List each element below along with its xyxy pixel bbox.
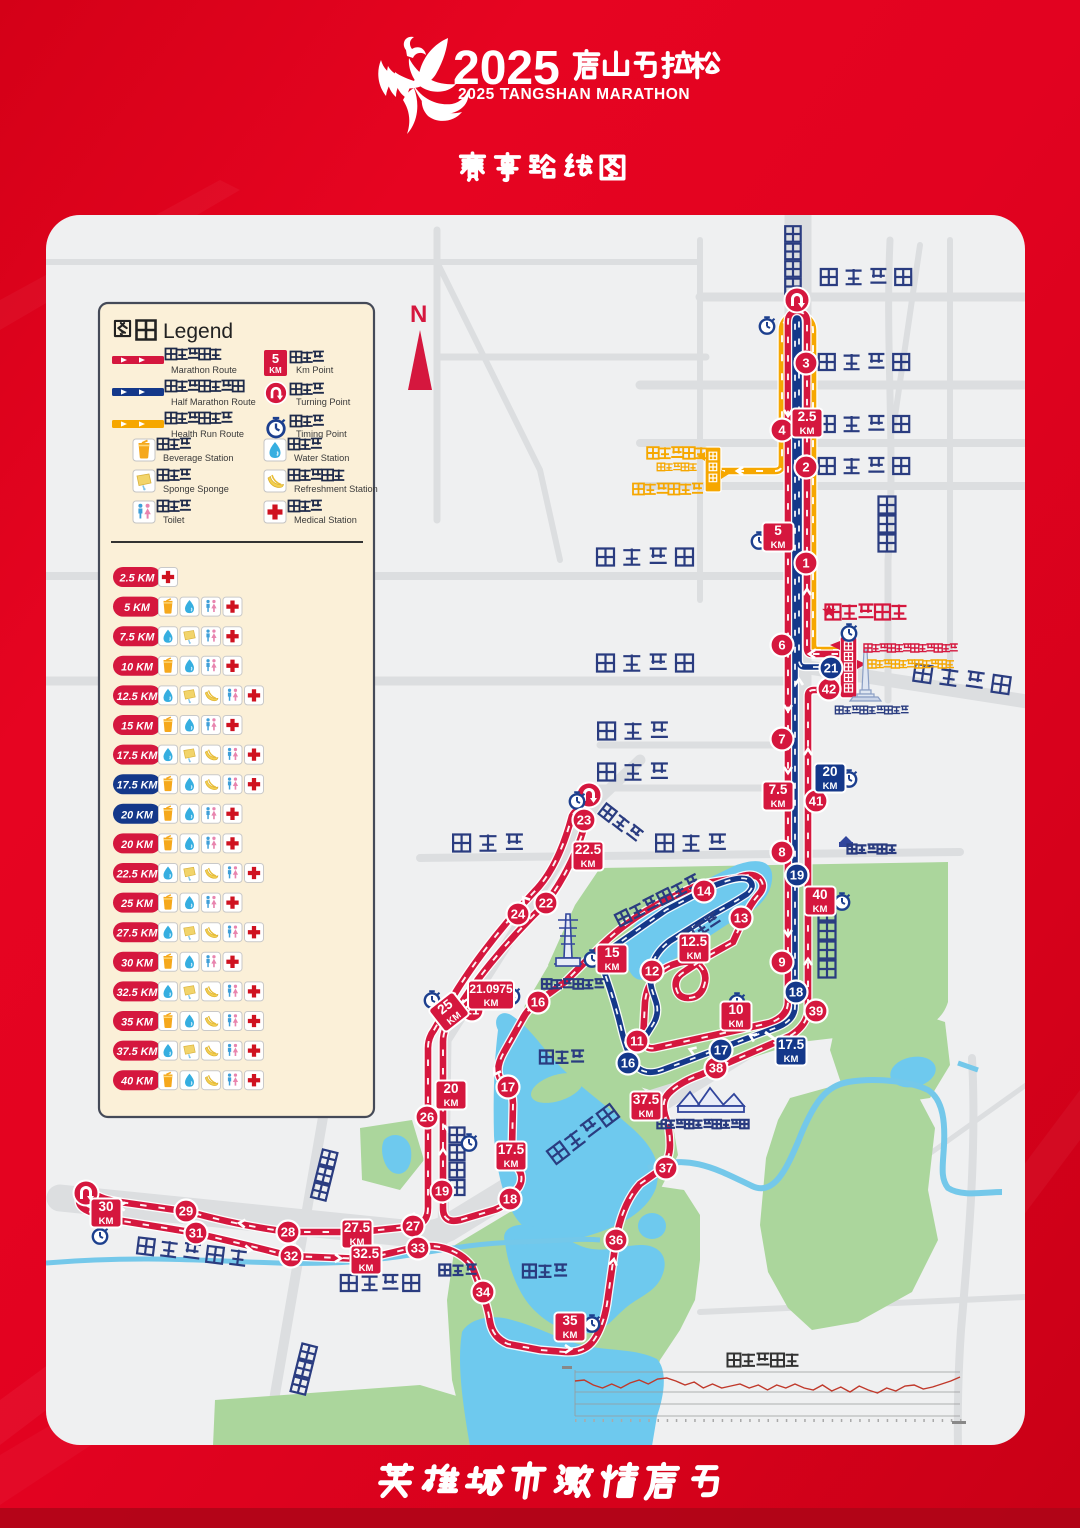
svg-text:23: 23 <box>577 813 591 828</box>
svg-text:30 KM: 30 KM <box>121 957 154 969</box>
svg-text:4: 4 <box>778 423 786 438</box>
svg-text:19: 19 <box>790 868 804 883</box>
svg-text:22.5: 22.5 <box>575 842 602 857</box>
svg-text:3: 3 <box>802 356 809 371</box>
svg-text:39: 39 <box>809 1004 823 1019</box>
svg-text:17.5 KM: 17.5 KM <box>117 780 159 792</box>
svg-text:27.5: 27.5 <box>344 1220 371 1235</box>
svg-text:29: 29 <box>179 1204 193 1219</box>
svg-text:28: 28 <box>281 1225 295 1240</box>
svg-text:Beverage Station: Beverage Station <box>163 453 234 463</box>
svg-text:KM: KM <box>99 1216 114 1227</box>
svg-text:7.5: 7.5 <box>769 782 788 797</box>
svg-text:KM: KM <box>823 781 838 792</box>
svg-text:2.5 KM: 2.5 KM <box>119 573 156 585</box>
svg-text:17.5: 17.5 <box>498 1142 525 1157</box>
svg-text:Sponge Sponge: Sponge Sponge <box>163 484 229 494</box>
svg-text:Timing Point: Timing Point <box>296 429 347 439</box>
svg-text:9: 9 <box>778 955 785 970</box>
svg-text:KM: KM <box>444 1098 459 1109</box>
svg-text:8: 8 <box>778 845 785 860</box>
svg-text:KM: KM <box>605 962 620 973</box>
svg-text:2025 TANGSHAN MARATHON: 2025 TANGSHAN MARATHON <box>458 86 690 103</box>
svg-text:7: 7 <box>778 732 785 747</box>
svg-text:KM: KM <box>484 998 499 1009</box>
svg-text:37.5 KM: 37.5 KM <box>117 1046 159 1058</box>
svg-text:32.5 KM: 32.5 KM <box>117 987 159 999</box>
svg-text:7.5 KM: 7.5 KM <box>120 632 156 644</box>
svg-text:Health Run Route: Health Run Route <box>171 429 244 439</box>
svg-text:35: 35 <box>562 1313 578 1328</box>
svg-text:KM: KM <box>269 366 282 375</box>
svg-text:35 KM: 35 KM <box>121 1017 154 1029</box>
svg-text:34: 34 <box>476 1285 491 1300</box>
svg-text:14: 14 <box>697 884 712 899</box>
svg-text:36: 36 <box>609 1233 623 1248</box>
svg-text:Medical Station: Medical Station <box>294 515 357 525</box>
svg-text:12: 12 <box>645 964 659 979</box>
svg-text:12.5: 12.5 <box>681 934 708 949</box>
svg-text:18: 18 <box>789 985 803 1000</box>
svg-text:18: 18 <box>503 1192 517 1207</box>
svg-text:10 KM: 10 KM <box>121 661 154 673</box>
svg-text:19: 19 <box>435 1184 449 1199</box>
svg-text:KM: KM <box>359 1263 374 1274</box>
svg-text:25 KM: 25 KM <box>120 898 154 910</box>
svg-text:Turning Point: Turning Point <box>296 397 351 407</box>
svg-text:30: 30 <box>98 1199 113 1214</box>
svg-text:15: 15 <box>604 945 620 960</box>
svg-text:Half Marathon Route: Half Marathon Route <box>171 397 256 407</box>
svg-text:40 KM: 40 KM <box>120 1076 154 1088</box>
svg-text:27.5 KM: 27.5 KM <box>116 928 159 940</box>
svg-text:Km Point: Km Point <box>296 365 334 375</box>
svg-text:17: 17 <box>714 1043 728 1058</box>
svg-text:24: 24 <box>511 907 526 922</box>
svg-text:KM: KM <box>813 904 828 915</box>
svg-text:26: 26 <box>420 1110 434 1125</box>
svg-text:20: 20 <box>822 764 837 779</box>
svg-text:N: N <box>410 301 427 328</box>
svg-text:21: 21 <box>824 661 838 676</box>
svg-text:13: 13 <box>734 911 748 926</box>
svg-text:37.5: 37.5 <box>633 1092 660 1107</box>
svg-text:KM: KM <box>800 426 815 437</box>
svg-text:2: 2 <box>802 460 809 475</box>
svg-text:5: 5 <box>272 351 279 366</box>
svg-text:31: 31 <box>189 1226 203 1241</box>
svg-text:KM: KM <box>729 1019 744 1030</box>
svg-text:6: 6 <box>778 638 785 653</box>
svg-text:20 KM: 20 KM <box>120 839 154 851</box>
svg-text:20: 20 <box>443 1081 458 1096</box>
svg-text:KM: KM <box>563 1330 578 1341</box>
svg-text:16: 16 <box>621 1056 635 1071</box>
svg-text:32: 32 <box>284 1249 298 1264</box>
svg-text:KM: KM <box>504 1159 519 1170</box>
svg-text:KM: KM <box>581 859 596 870</box>
svg-text:KM: KM <box>639 1109 654 1120</box>
svg-text:11: 11 <box>630 1034 644 1049</box>
svg-text:20 KM: 20 KM <box>120 809 154 821</box>
svg-text:Refreshment Station: Refreshment Station <box>294 484 378 494</box>
svg-text:42: 42 <box>822 682 836 697</box>
svg-text:KM: KM <box>687 951 702 962</box>
svg-text:10: 10 <box>728 1002 743 1017</box>
svg-text:22.5 KM: 22.5 KM <box>116 869 159 881</box>
svg-text:33: 33 <box>411 1241 425 1256</box>
svg-text:1: 1 <box>802 556 809 571</box>
svg-text:17.5: 17.5 <box>778 1037 805 1052</box>
svg-text:Legend: Legend <box>163 320 233 343</box>
svg-text:38: 38 <box>709 1061 723 1076</box>
svg-text:41: 41 <box>809 794 823 809</box>
svg-text:Toilet: Toilet <box>163 515 185 525</box>
svg-text:32.5: 32.5 <box>353 1246 380 1261</box>
svg-text:2.5: 2.5 <box>798 409 817 424</box>
svg-text:17: 17 <box>501 1080 515 1095</box>
svg-text:15 KM: 15 KM <box>121 721 154 733</box>
svg-text:5 KM: 5 KM <box>124 602 151 614</box>
svg-text:KM: KM <box>784 1054 799 1065</box>
svg-text:22: 22 <box>539 896 553 911</box>
svg-text:Water Station: Water Station <box>294 453 349 463</box>
svg-text:KM: KM <box>771 540 786 551</box>
svg-text:27: 27 <box>406 1219 420 1234</box>
svg-text:5: 5 <box>774 523 782 538</box>
svg-text:12.5 KM: 12.5 KM <box>117 691 159 703</box>
svg-text:37: 37 <box>659 1161 673 1176</box>
svg-text:Marathon Route: Marathon Route <box>171 365 237 375</box>
svg-text:40: 40 <box>812 887 827 902</box>
svg-text:16: 16 <box>531 995 545 1010</box>
svg-text:KM: KM <box>771 799 786 810</box>
svg-text:17.5 KM: 17.5 KM <box>117 750 159 762</box>
svg-text:21.0975: 21.0975 <box>469 982 513 996</box>
